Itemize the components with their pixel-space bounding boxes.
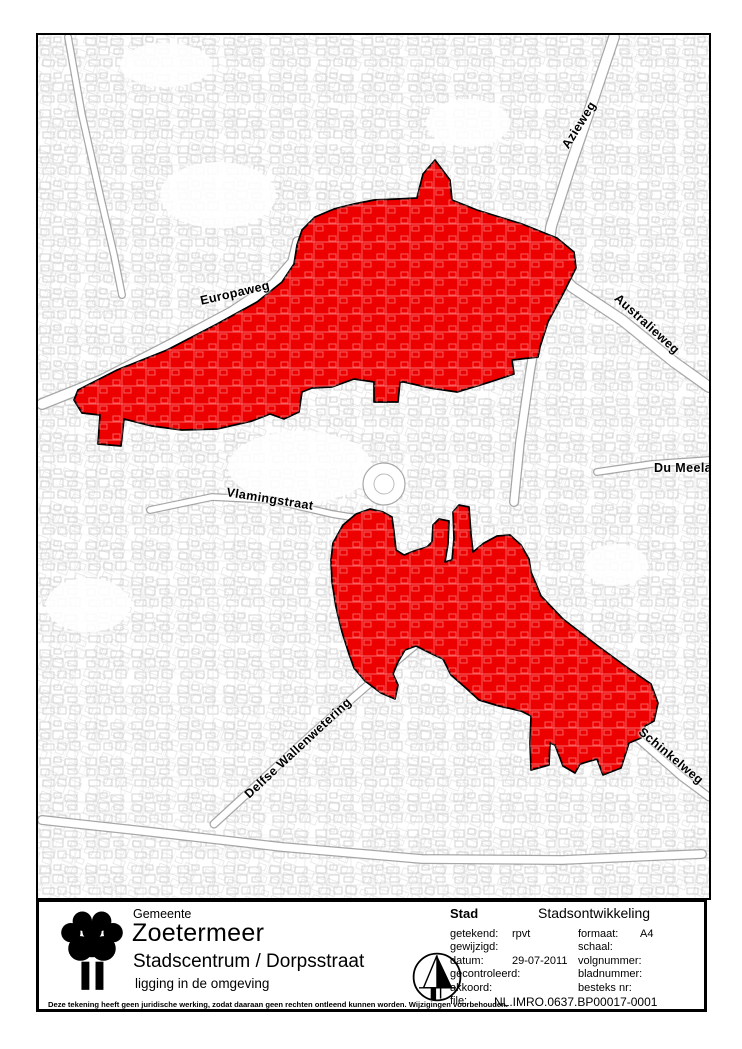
field-value: rpvt — [512, 928, 578, 941]
field-row: akkoord: besteks nr: — [450, 982, 700, 995]
department-right: Stadsontwikkeling — [538, 905, 650, 921]
department-left: Stad — [450, 906, 478, 921]
basemap — [38, 35, 709, 898]
plan-sheet: Europaweg Azieweg Australieweg Vlamingst… — [0, 0, 742, 1049]
plan-title: Stadscentrum / Dorpsstraat — [133, 951, 364, 973]
field-value: 29-07-2011 — [512, 955, 578, 968]
field-value — [640, 982, 700, 995]
municipality-name: Zoetermeer — [132, 919, 264, 948]
map-area: Europaweg Azieweg Australieweg Vlamingst… — [36, 33, 711, 900]
field-label: schaal: — [578, 941, 640, 954]
field-value — [640, 968, 700, 981]
field-value — [640, 955, 700, 968]
field-row: gewijzigd: schaal: — [450, 941, 700, 954]
field-label: bladnummer: — [578, 968, 640, 981]
field-label: akkoord: — [450, 982, 512, 995]
zoetermeer-logo-icon — [55, 908, 129, 996]
imro-file-number: NL.IMRO.0637.BP00017-0001 — [494, 995, 657, 1009]
field-value — [512, 982, 578, 995]
field-label: formaat: — [578, 928, 640, 941]
disclaimer-text: Deze tekening heeft geen juridische werk… — [48, 1000, 508, 1009]
field-label: getekend: — [450, 928, 512, 941]
field-value — [512, 968, 578, 981]
field-label: gewijzigd: — [450, 941, 512, 954]
field-row: datum: 29-07-2011 volgnummer: — [450, 955, 700, 968]
street-label-du-meelaan: Du Meela — [654, 461, 711, 475]
field-label: besteks nr: — [578, 982, 640, 995]
title-block: Gemeente Zoetermeer Stadscentrum / Dorps… — [36, 899, 707, 1012]
field-value: A4 — [640, 928, 700, 941]
field-label: volgnummer: — [578, 955, 640, 968]
field-row: getekend: rpvt formaat: A4 — [450, 928, 700, 941]
field-label: datum: — [450, 955, 512, 968]
field-label: gecontroleerd: — [450, 968, 512, 981]
pond-roundabout — [363, 463, 405, 505]
field-value — [640, 941, 700, 954]
field-value — [512, 941, 578, 954]
plan-subtitle: ligging in de omgeving — [135, 976, 269, 991]
field-row: gecontroleerd: bladnummer: — [450, 968, 700, 981]
